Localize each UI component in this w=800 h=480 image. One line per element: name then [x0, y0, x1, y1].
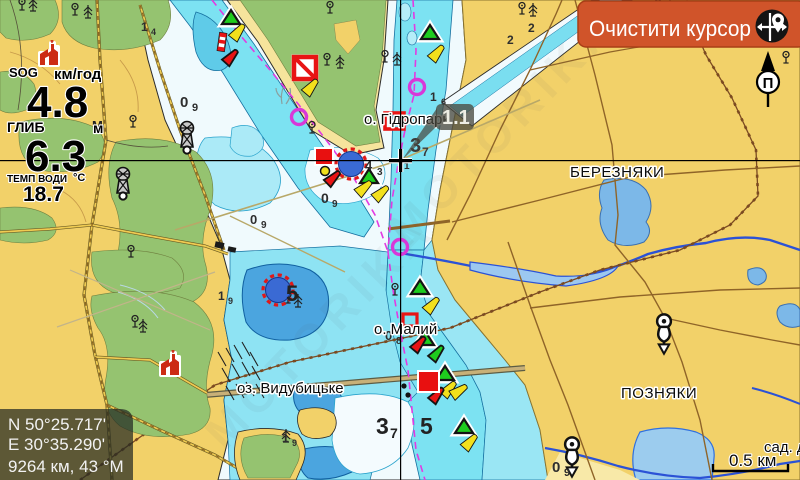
- svg-text:2: 2: [507, 33, 514, 47]
- svg-text:9: 9: [564, 467, 570, 479]
- svg-text:9: 9: [192, 102, 198, 114]
- svg-text:9: 9: [261, 220, 267, 231]
- svg-text:3: 3: [377, 167, 383, 178]
- svg-text:0: 0: [321, 190, 329, 206]
- svg-text:E 30°35.290': E 30°35.290': [8, 435, 105, 454]
- svg-text:П: П: [763, 75, 774, 92]
- svg-text:1: 1: [218, 289, 225, 303]
- svg-text:1.1: 1.1: [442, 107, 470, 129]
- svg-text:4: 4: [151, 27, 156, 37]
- svg-text:0: 0: [180, 94, 188, 111]
- svg-text:°C: °C: [73, 172, 85, 184]
- svg-text:БЕРЕЗНЯКИ: БЕРЕЗНЯКИ: [570, 164, 664, 181]
- svg-text:м: м: [93, 120, 103, 136]
- svg-text:2: 2: [528, 21, 535, 35]
- svg-text:ПОЗНЯКИ: ПОЗНЯКИ: [621, 385, 697, 402]
- svg-text:9: 9: [292, 438, 297, 448]
- svg-text:0.5 км: 0.5 км: [729, 451, 776, 470]
- svg-text:Очистити курсор: Очистити курсор: [589, 16, 751, 41]
- svg-text:18.7: 18.7: [23, 183, 64, 206]
- svg-text:9264 км, 43 °M: 9264 км, 43 °M: [8, 457, 124, 476]
- svg-text:0: 0: [250, 212, 257, 227]
- svg-text:1: 1: [430, 90, 437, 104]
- svg-text:0: 0: [552, 459, 560, 476]
- svg-text:5: 5: [286, 281, 298, 306]
- svg-text:9: 9: [332, 199, 338, 210]
- svg-text:5: 5: [420, 413, 433, 439]
- svg-text:о. Малий: о. Малий: [374, 321, 437, 338]
- svg-text:7: 7: [422, 145, 429, 159]
- svg-text:3: 3: [376, 413, 389, 439]
- svg-text:1: 1: [282, 431, 289, 445]
- svg-text:оз. Видубицьке: оз. Видубицьке: [237, 380, 344, 397]
- svg-text:1: 1: [141, 20, 148, 34]
- svg-text:N 50°25.717': N 50°25.717': [8, 415, 106, 434]
- svg-text:9: 9: [228, 296, 233, 306]
- svg-text:7: 7: [390, 425, 398, 441]
